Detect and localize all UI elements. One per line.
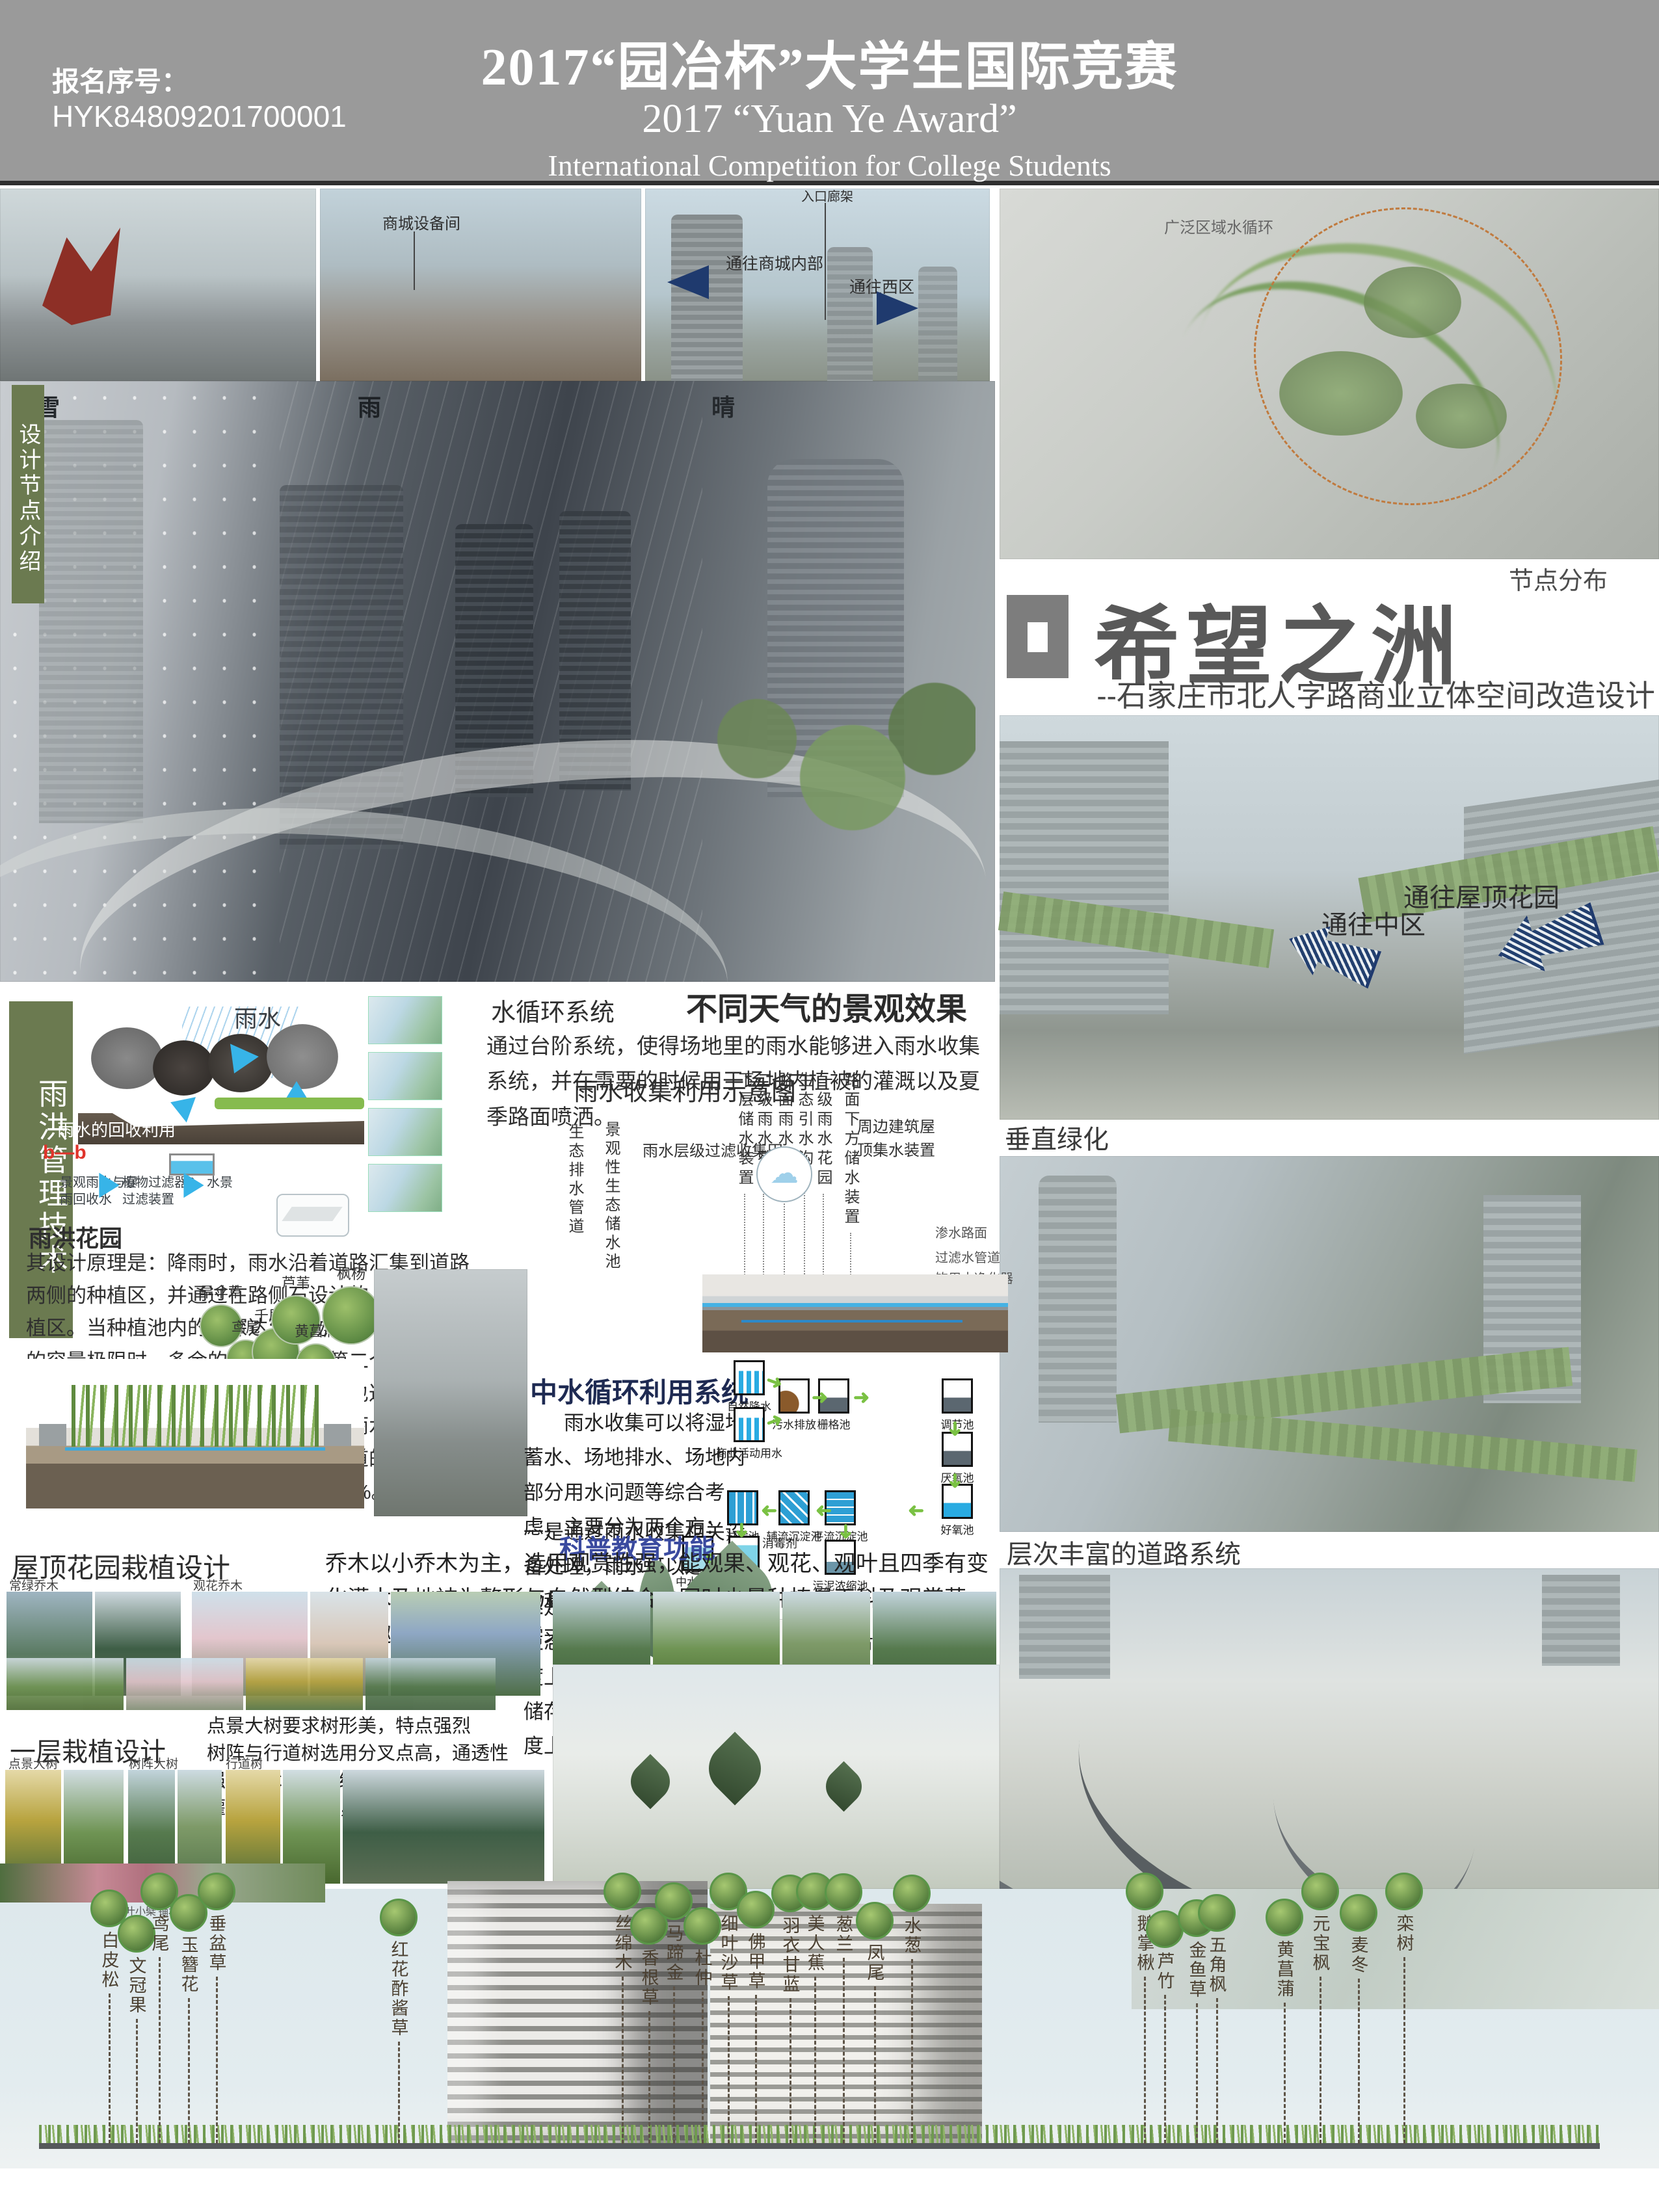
dashed-leader — [874, 1986, 876, 2144]
flow-arrow-icon: ➜ — [761, 1499, 777, 1522]
green-terrace-shape — [1168, 1409, 1638, 1482]
plant-callout: 麦冬 — [1340, 1894, 1377, 2144]
pipe-shape — [741, 1320, 962, 1323]
rain-label: 雨 — [358, 389, 381, 423]
leader-line — [414, 231, 415, 290]
competition-subtitle-en: International Competition for College St… — [0, 148, 1659, 183]
rainwater-label: 雨水 — [234, 1000, 281, 1034]
flow-arrow-icon: ➜ — [763, 1369, 786, 1395]
section-mark-label: b—b — [43, 1142, 86, 1164]
dashed-leader — [1320, 1977, 1321, 2144]
plant-callout: 栾树 — [1385, 1873, 1423, 2144]
design-nodes-intro-tab: 设计节点介绍 — [12, 385, 44, 603]
plant-photo-circle — [380, 1899, 418, 1936]
water-level-line — [65, 1447, 325, 1451]
plant-photo-circle — [1301, 1873, 1339, 1910]
plant-photo-circle — [1126, 1873, 1163, 1910]
flow-step-label: 水景 — [207, 1174, 285, 1191]
competition-title-en: 2017 “Yuan Ye Award” — [0, 96, 1659, 142]
plant-callout: 红花酢酱草 — [380, 1899, 418, 2144]
plant-callout: 黄菖蒲 — [1266, 1899, 1303, 2144]
water-regeneration-label: 水的再生 — [246, 1144, 319, 1170]
grid-tree-category-label: 树阵大树 — [129, 1754, 178, 1772]
dashed-leader — [1216, 1998, 1218, 2144]
to-mall-interior-label: 通往商城内部 — [726, 251, 823, 274]
building-shape — [1019, 1575, 1110, 1679]
flow-arrow-icon: ➜ — [853, 1386, 869, 1409]
plant-photo-circle — [1266, 1899, 1303, 1936]
walkway-photo — [343, 1770, 544, 1884]
flow-box: 好氧池 — [941, 1484, 974, 1537]
plant-photo-circle — [322, 1286, 380, 1345]
rain-cloud-icon: ☁ — [756, 1146, 812, 1202]
water-channel-shape — [702, 1303, 1008, 1307]
tree-shape — [153, 1040, 215, 1096]
tree-cluster-shape — [702, 661, 975, 856]
flow-arrow-icon: ➜ — [730, 1522, 753, 1538]
arrow-right-icon — [877, 291, 918, 325]
plant-photo — [7, 1658, 124, 1710]
plant-callout: 水葱 — [893, 1875, 931, 2144]
plant-callout: 佛甲草 — [737, 1891, 775, 2144]
vertical-greening-caption: 垂直绿化 — [1005, 1118, 1109, 1156]
planting-strokes — [72, 1385, 319, 1447]
weather-effects-caption: 不同天气的景观效果 — [686, 983, 967, 1029]
flow-box-fill — [778, 1490, 810, 1525]
leaf-sign-shape — [623, 1754, 678, 1810]
building-shape — [1039, 1176, 1117, 1423]
flow-arrow-icon — [183, 1173, 204, 1198]
collection-section-drawing — [702, 1274, 1008, 1352]
curb-shape — [39, 1424, 66, 1446]
node-distribution-caption: 节点分布 — [1509, 560, 1608, 596]
plant-photo — [126, 1658, 243, 1710]
entrance-pergola-label: 入口廊架 — [801, 186, 853, 205]
header-band: 报名序号： HYK84809201700001 2017“园冶杯”大学生国际竞赛… — [0, 0, 1659, 185]
plant-callout: 凤尾 — [856, 1902, 894, 2144]
dashed-leader — [1358, 1979, 1360, 2144]
flow-arrow-icon: ➜ — [834, 1523, 857, 1540]
dashed-leader — [911, 1959, 913, 2144]
dashed-leader — [702, 1992, 704, 2144]
dashed-leader — [673, 1986, 675, 2144]
flow-arrow-icon: ➜ — [908, 1499, 924, 1522]
competition-title-cn: 2017“园冶杯”大学生国际竞赛 — [0, 25, 1659, 100]
plant-photo-circle — [737, 1891, 775, 1929]
plant-photo — [246, 1658, 363, 1710]
dashed-leader — [843, 1958, 845, 2144]
rain-recycle-label: 雨水的回收利用 — [57, 1117, 176, 1141]
to-roof-garden-label: 通往屋顶花园 — [1403, 876, 1559, 914]
plant-callout: 五角枫 — [1198, 1894, 1236, 2144]
roof-shrub-photos — [7, 1658, 496, 1710]
lawn-shape — [215, 1098, 364, 1109]
feature-tree-category-label: 点景大树 — [8, 1754, 58, 1772]
red-sculpture-shape — [33, 228, 130, 325]
render-planter-street — [374, 1269, 527, 1516]
rain-garden-cross-section — [26, 1359, 364, 1508]
plant-callout: 枫杨 — [322, 1263, 380, 1345]
render-weather-scenes — [0, 381, 995, 982]
plant-photo-circle — [604, 1873, 641, 1910]
plant-photo-circle — [1198, 1894, 1236, 1932]
leaf-sign-shape — [698, 1731, 771, 1805]
evergreen-category-label: 常绿乔木 — [9, 1576, 59, 1594]
plan-thumbnail — [368, 1108, 442, 1156]
dashed-leader — [1284, 2003, 1286, 2144]
eco-storage-label: 景观性生态储水池 — [600, 1121, 622, 1272]
building-shape — [1542, 1575, 1620, 1666]
building-shape — [1000, 741, 1169, 1014]
plan-thumbnail — [368, 996, 442, 1044]
plant-callout: 元宝枫 — [1301, 1873, 1339, 2144]
dashed-leader — [790, 1998, 791, 2144]
dashed-leader — [648, 2011, 650, 2144]
dashed-leader — [216, 1977, 218, 2144]
ground-text-line1: 点景大树要求树形美，特点强烈 — [207, 1713, 512, 1740]
plan-thumbnail — [368, 1164, 442, 1212]
dashed-leader — [728, 1996, 730, 2144]
arrow-left-icon — [667, 265, 709, 299]
road-system-caption: 层次丰富的道路系统 — [1007, 1533, 1241, 1571]
plant-photo-circle — [893, 1875, 931, 1912]
dashed-leader — [814, 1977, 816, 2144]
plant-photo-circle — [198, 1873, 235, 1910]
competition-poster: 报名序号： HYK84809201700001 2017“园冶杯”大学生国际竞赛… — [0, 0, 1659, 2212]
flowering-category-label: 观花乔木 — [193, 1576, 243, 1594]
dashed-leader — [622, 1977, 624, 2144]
flow-box-fill — [942, 1432, 973, 1467]
sunny-label: 晴 — [711, 389, 735, 423]
eco-drain-label: 生态排水管道 — [563, 1124, 586, 1237]
plant-photo-circle — [856, 1902, 894, 1940]
project-subtitle: --石家庄市北人字路商业立体空间改造设计 — [1034, 672, 1655, 715]
flow-box-fill — [778, 1378, 810, 1414]
dashed-leader — [755, 1995, 757, 2144]
dashed-leader — [188, 1998, 190, 2144]
render-road-system — [1000, 1568, 1659, 1889]
tower-shape — [918, 267, 957, 381]
equipment-room-label: 商城设备间 — [382, 211, 460, 233]
leaf-sign-shape — [819, 1761, 869, 1812]
plant-photo-circle — [1385, 1873, 1423, 1910]
flow-box-fill — [942, 1378, 973, 1414]
render-aerial-masterplan — [1000, 189, 1659, 559]
regional-water-cycle-label: 广泛区域水循环 — [1164, 215, 1273, 237]
street-tree-category-label: 行道树 — [226, 1754, 263, 1772]
tree-shape — [91, 1027, 163, 1089]
plant-photo-circle — [1340, 1894, 1377, 1932]
flow-arrow-icon: ➜ — [812, 1386, 828, 1409]
render-vertical-greening — [1000, 1156, 1659, 1532]
tower-shape — [827, 247, 873, 381]
flow-arrow-icon: ➜ — [944, 1421, 966, 1437]
water-cycle-title: 水循环系统 — [491, 992, 615, 1028]
render-plaza-sculpture — [0, 189, 316, 381]
filter-pipe-label: 过滤水管道 — [935, 1247, 1000, 1266]
tower-shape — [39, 420, 143, 823]
road-inlet-thumbnail — [276, 1194, 349, 1237]
curb-shape — [324, 1424, 351, 1446]
dashed-leader — [159, 1957, 161, 2144]
flow-arrow-icon: ➜ — [944, 1473, 966, 1489]
permeable-pavement-label: 渗水路面 — [935, 1222, 987, 1241]
leader-line — [825, 203, 826, 320]
tree-shape — [267, 1024, 338, 1089]
flow-arrow-icon: ➜ — [816, 1499, 832, 1522]
flow-arrow-icon — [99, 1173, 119, 1198]
dashed-leader — [109, 1994, 111, 2144]
dashed-leader — [136, 2019, 138, 2144]
elevation-plant-callouts: 白皮松 文冠果 鸢尾 玉簪花 垂盆草 红花酢酱草 — [0, 1873, 1659, 2155]
greywater-title: 中水循环利用系统 — [530, 1371, 749, 1410]
dashed-leader — [1403, 1957, 1405, 2144]
flow-box-fill — [942, 1484, 973, 1519]
project-logo-square — [1007, 595, 1068, 678]
roof-collector-label: 周边建筑屋顶集水装置 — [857, 1116, 942, 1163]
flow-arrow-icon: ➜ — [763, 1408, 786, 1434]
render-plaza-signs — [553, 1665, 1000, 1889]
plant-callout: 垂盆草 — [198, 1873, 235, 2144]
plant-photo — [365, 1658, 496, 1710]
dashed-leader — [398, 2042, 400, 2144]
render-deck-seating — [320, 189, 641, 381]
plan-thumbnail — [368, 1052, 442, 1100]
dashed-leader — [1164, 1995, 1166, 2144]
